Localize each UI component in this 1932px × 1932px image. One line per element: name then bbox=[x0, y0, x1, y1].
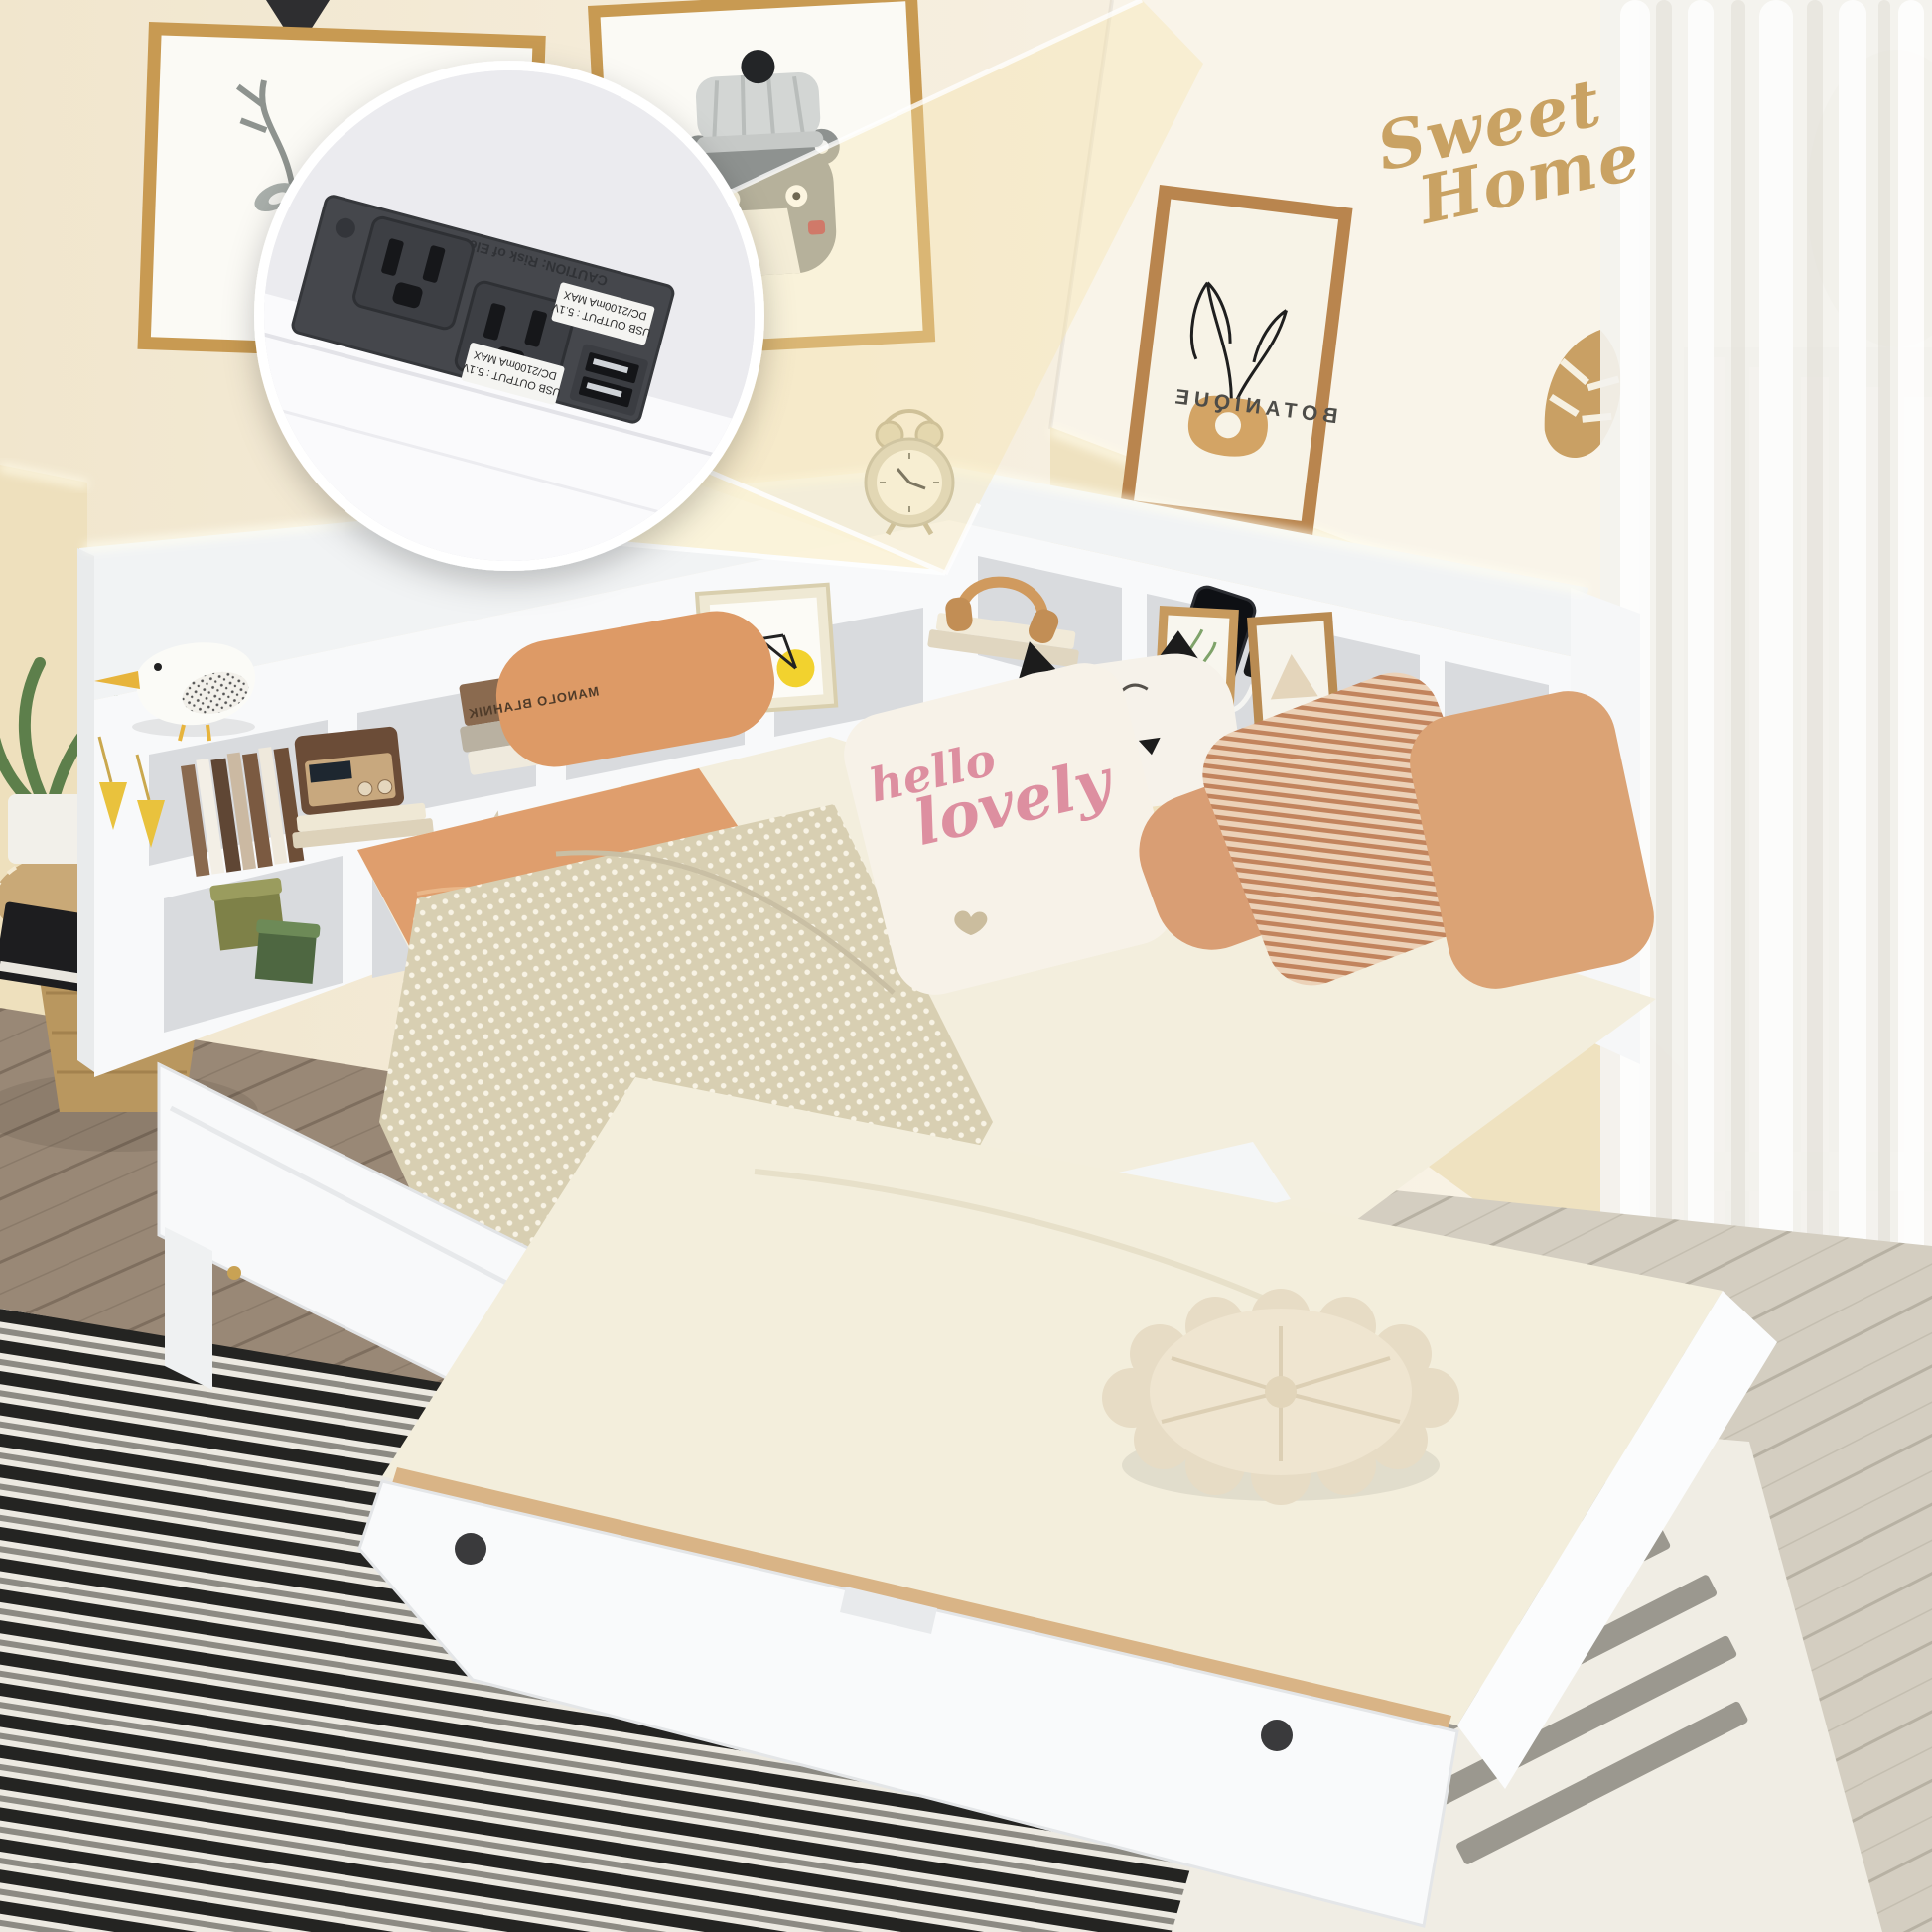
room-scene: ⚡ bbox=[0, 0, 1932, 1932]
bedroom-product-photo: ⚡ bbox=[0, 0, 1932, 1932]
trundle-wheel bbox=[455, 1533, 486, 1565]
gold-screw bbox=[227, 1266, 241, 1280]
pouf-button bbox=[1265, 1376, 1297, 1408]
bird-leg bbox=[207, 725, 209, 741]
bird-eye bbox=[154, 663, 162, 671]
botanique-poster-frame bbox=[1120, 185, 1353, 535]
sheer-curtain bbox=[1600, 0, 1932, 1299]
trundle-wheel bbox=[1261, 1720, 1293, 1751]
left-wing-end-panel bbox=[77, 548, 94, 1072]
plant-pot bbox=[8, 794, 85, 864]
bed-leg bbox=[165, 1227, 212, 1390]
